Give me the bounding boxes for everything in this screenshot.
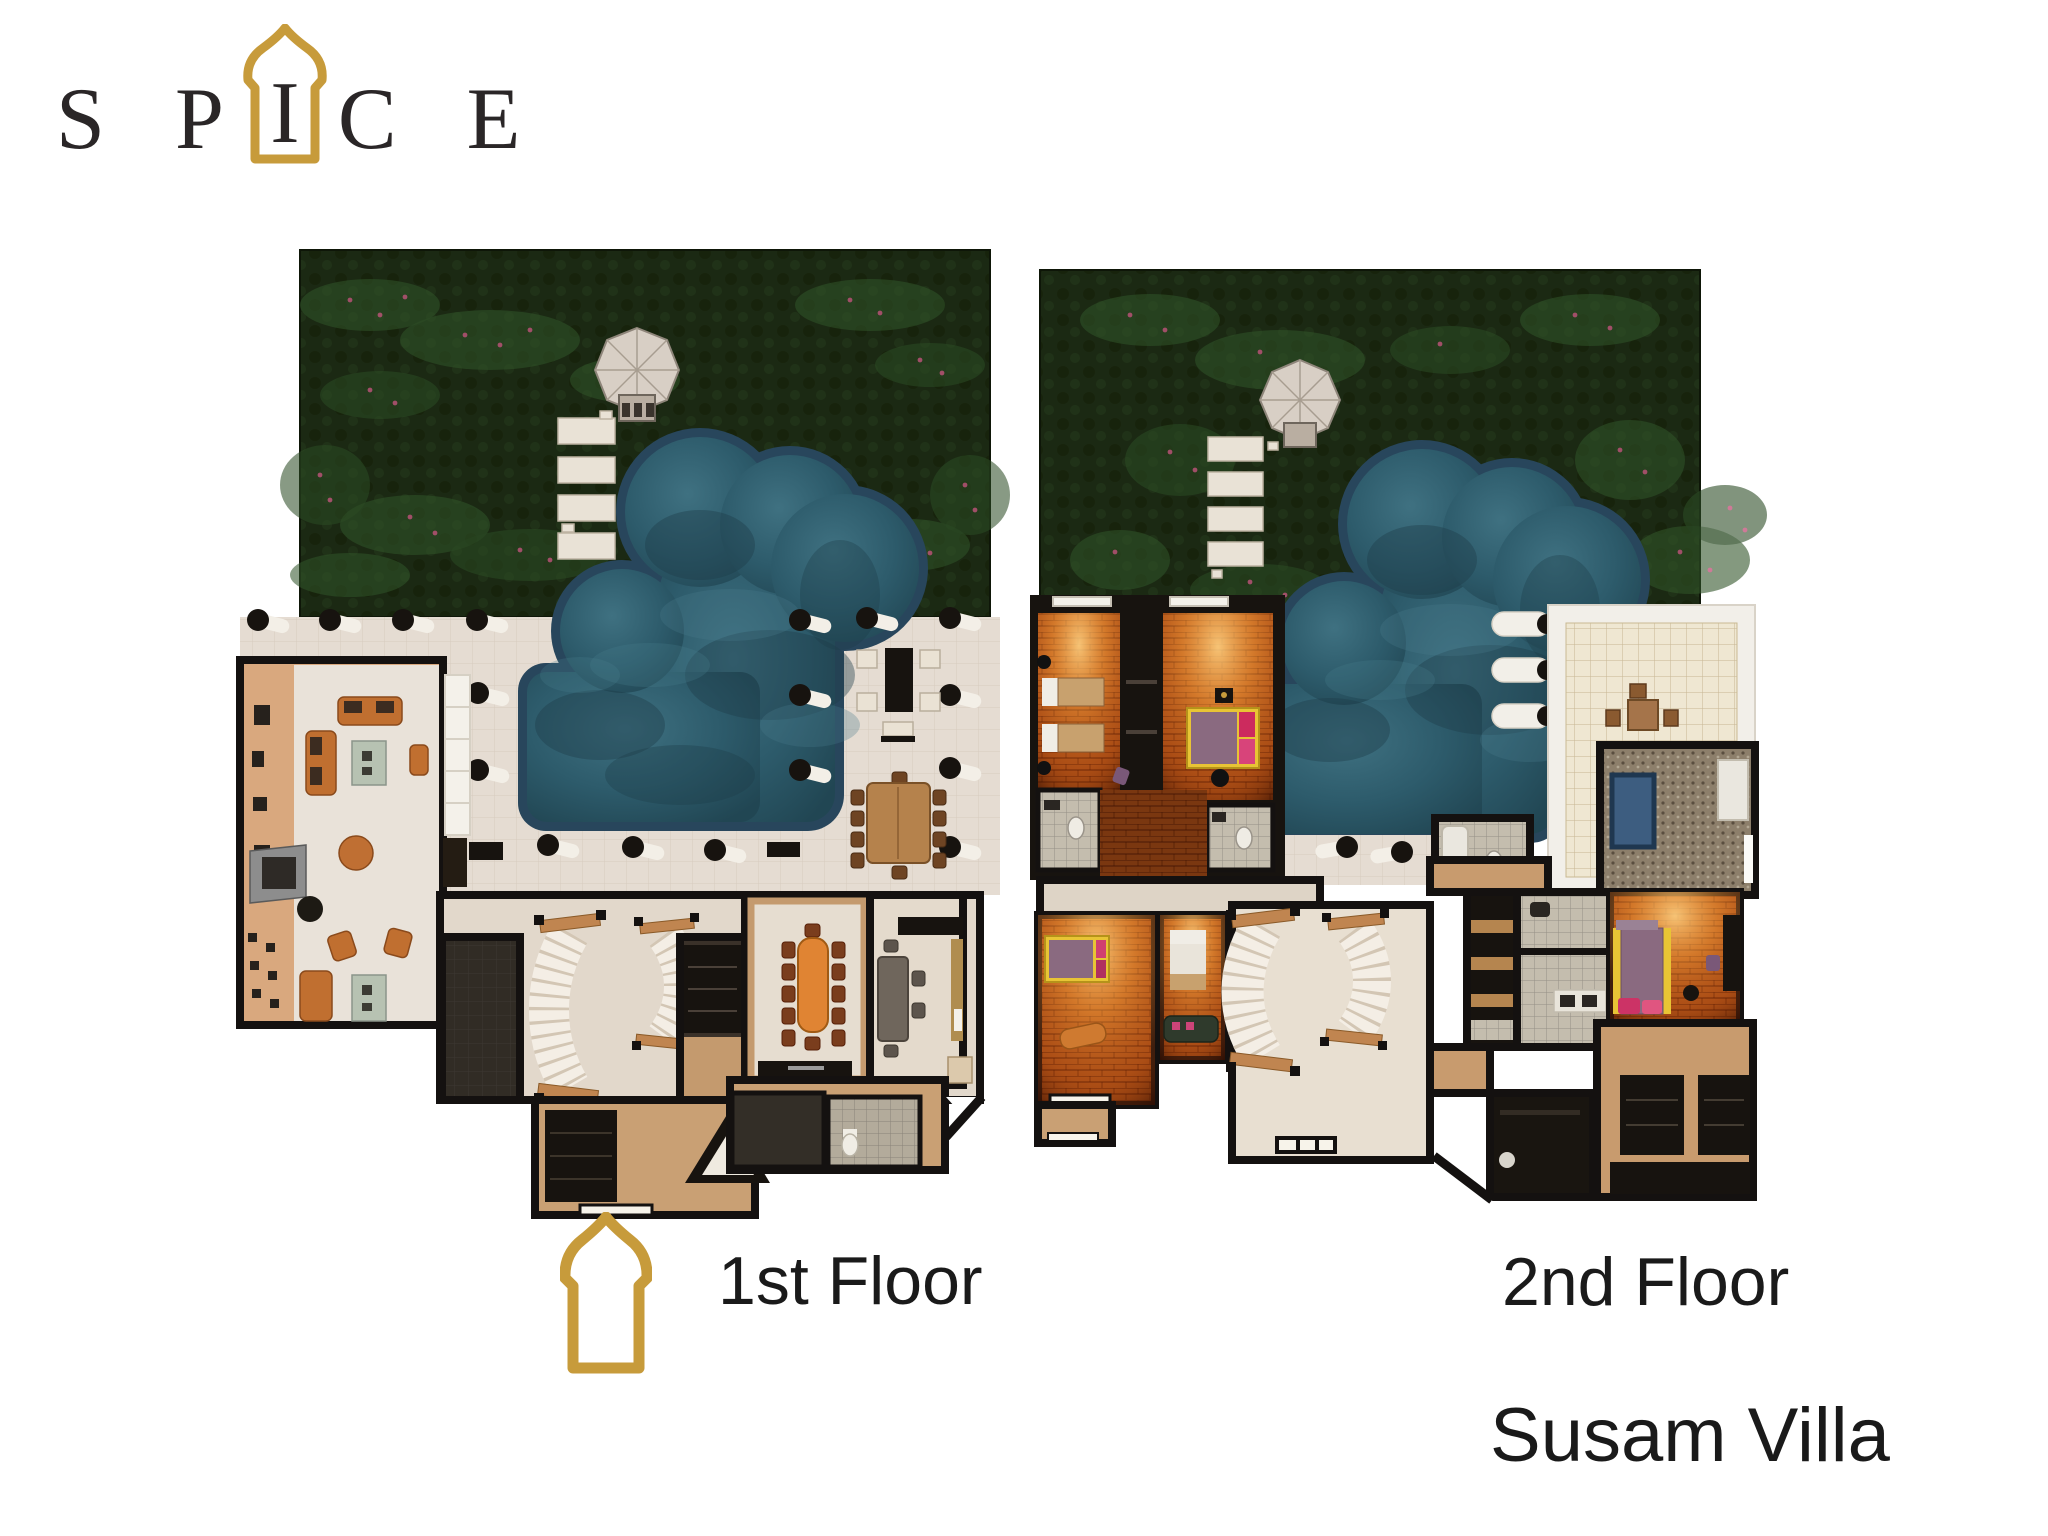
storage-room: [442, 937, 520, 1100]
first-floor-caption: 1st Floor: [560, 1212, 983, 1374]
second-floor-plan: [1030, 260, 1780, 1300]
bedroom: [1038, 915, 1155, 1105]
logo-letters-before: S P: [56, 76, 248, 164]
bedroom: [1163, 613, 1273, 800]
hall: [1430, 1047, 1490, 1093]
dining-room: [745, 895, 870, 1085]
closet-room: [1467, 892, 1517, 1047]
moorish-arch-icon: [560, 1212, 652, 1374]
bathroom: [1038, 790, 1100, 870]
meeting-room: [870, 895, 972, 1085]
corridor: [1430, 860, 1548, 892]
villa-name: Susam Villa: [1490, 1392, 1890, 1479]
floor-plan-sheet: S P I C E: [0, 0, 2048, 1536]
stair-hall: [1226, 905, 1430, 1160]
bedroom: [1037, 613, 1120, 790]
dressing-room: [1597, 1023, 1753, 1197]
logo-arch-frame: I: [242, 24, 328, 164]
second-floor-label: 2nd Floor: [1502, 1243, 1789, 1321]
bathroom: [1207, 805, 1273, 870]
lower-wing: [440, 895, 982, 1215]
bedroom: [1160, 915, 1225, 1060]
tv-unit: [250, 845, 306, 903]
first-floor-label: 1st Floor: [718, 1242, 983, 1320]
logo-arch-letter: I: [270, 70, 299, 164]
master-bedroom: [1610, 892, 1741, 1023]
wardrobe-room: [680, 937, 745, 1100]
bedroom-block: [1030, 595, 1285, 880]
plant: [297, 896, 323, 922]
master-suite: [1428, 860, 1753, 1202]
ottoman: [339, 836, 373, 870]
spa-bathroom: [1600, 745, 1755, 895]
logo-letters-after: C E: [338, 76, 544, 164]
bedroom-extension: [1038, 1105, 1112, 1143]
first-floor-plan: [230, 245, 1010, 1220]
living-room: [240, 660, 443, 1025]
inner-hallway: [1100, 790, 1207, 880]
dark-bathroom: [1490, 1093, 1593, 1197]
bedroom-wing: [1038, 905, 1430, 1160]
spice-logo: S P I C E: [56, 24, 544, 164]
bathroom-extension: [730, 1080, 982, 1170]
